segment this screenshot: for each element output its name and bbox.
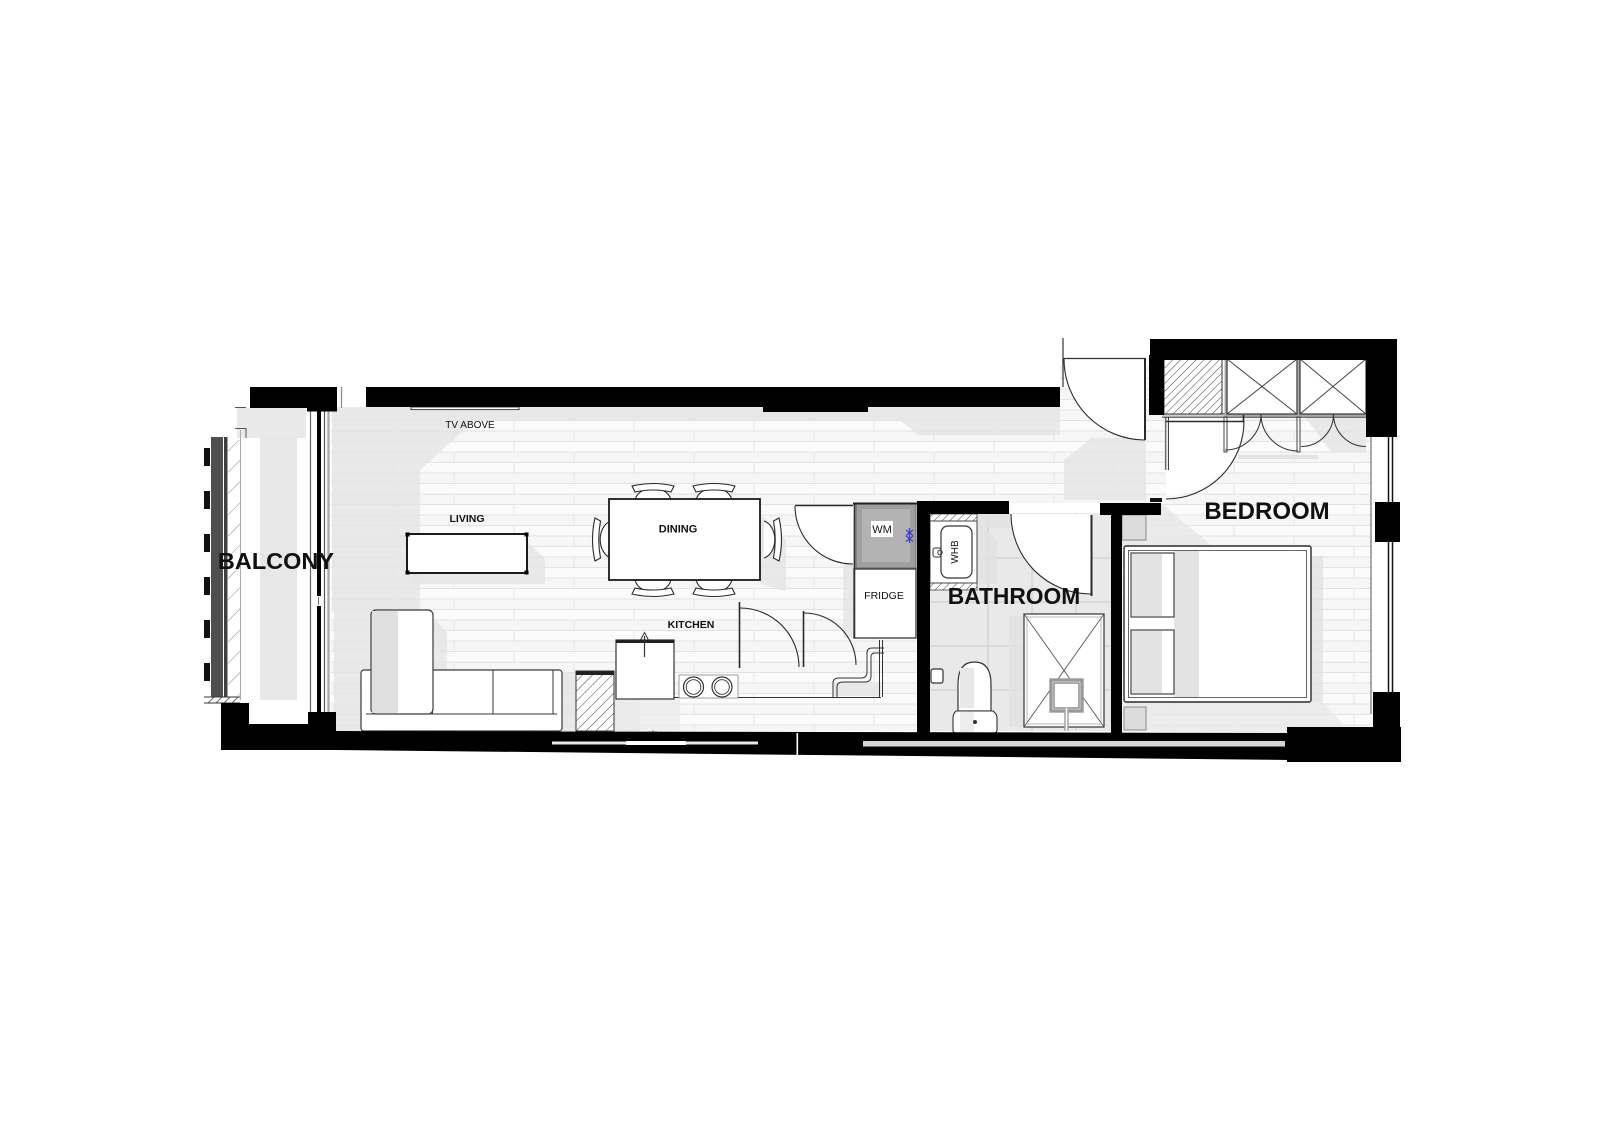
svg-text:DINING: DINING xyxy=(659,524,698,536)
svg-text:BEDROOM: BEDROOM xyxy=(1204,498,1329,525)
svg-text:BATHROOM: BATHROOM xyxy=(948,583,1081,609)
svg-text:BALCONY: BALCONY xyxy=(218,548,335,574)
svg-text:WM: WM xyxy=(872,524,892,536)
svg-text:FRIDGE: FRIDGE xyxy=(864,590,904,602)
svg-text:WHB: WHB xyxy=(950,540,961,564)
svg-text:TV ABOVE: TV ABOVE xyxy=(445,420,495,431)
svg-text:LIVING: LIVING xyxy=(449,513,484,525)
svg-text:KITCHEN: KITCHEN xyxy=(668,619,715,631)
